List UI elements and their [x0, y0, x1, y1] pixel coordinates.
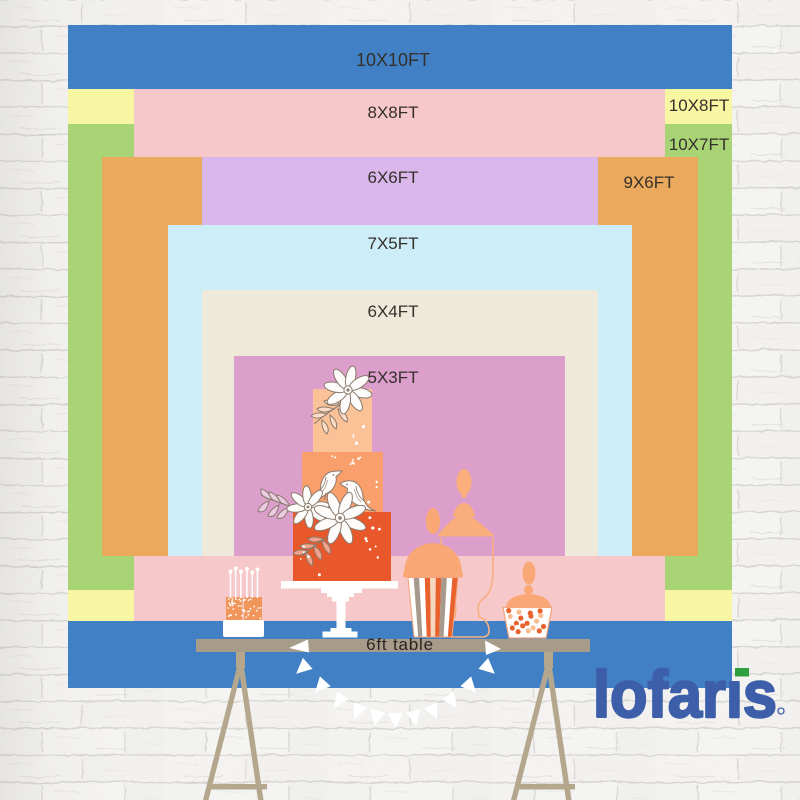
svg-text:6ft table: 6ft table [366, 635, 434, 654]
svg-text:7X5FT: 7X5FT [367, 234, 418, 253]
svg-text:9X6FT: 9X6FT [623, 173, 674, 192]
svg-text:10X8FT: 10X8FT [669, 96, 729, 115]
svg-text:lofarıs: lofarıs [593, 657, 777, 731]
svg-text:10X10FT: 10X10FT [356, 50, 430, 70]
svg-text:6X6FT: 6X6FT [367, 168, 418, 187]
svg-text:10X7FT: 10X7FT [669, 135, 729, 154]
svg-text:8X8FT: 8X8FT [367, 103, 418, 122]
svg-text:5X3FT: 5X3FT [367, 368, 418, 387]
svg-text:6X4FT: 6X4FT [367, 302, 418, 321]
